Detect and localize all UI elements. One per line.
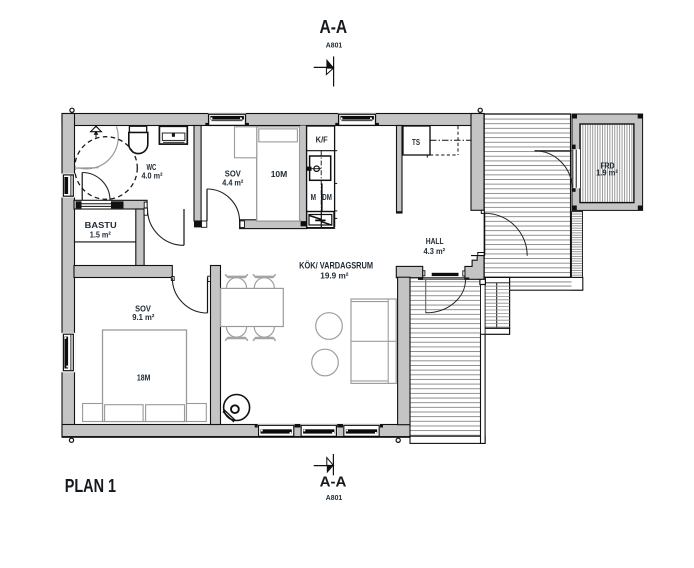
svg-text:18M: 18M [137,372,151,382]
svg-text:A801: A801 [326,40,342,49]
svg-text:9.1 m²: 9.1 m² [132,312,154,322]
svg-text:A-A: A-A [320,474,347,490]
svg-text:19.9 m²: 19.9 m² [320,270,348,280]
svg-text:TS: TS [412,137,420,147]
svg-text:K/F: K/F [316,134,328,144]
svg-text:4.4 m²: 4.4 m² [222,178,243,188]
svg-text:A-A: A-A [319,17,347,37]
svg-text:4.0 m²: 4.0 m² [142,171,163,181]
svg-text:M: M [311,192,316,202]
svg-text:1.9 m²: 1.9 m² [596,167,618,177]
svg-text:4.3 m²: 4.3 m² [423,246,445,256]
svg-text:A801: A801 [326,493,342,502]
svg-text:1.5 m²: 1.5 m² [90,229,111,239]
svg-text:PLAN 1: PLAN 1 [65,476,116,496]
svg-text:10M: 10M [271,169,288,179]
svg-text:HALL: HALL [426,236,444,246]
svg-text:KÖK/ VARDAGSRUM: KÖK/ VARDAGSRUM [299,260,373,270]
svg-text:DM: DM [322,192,332,202]
